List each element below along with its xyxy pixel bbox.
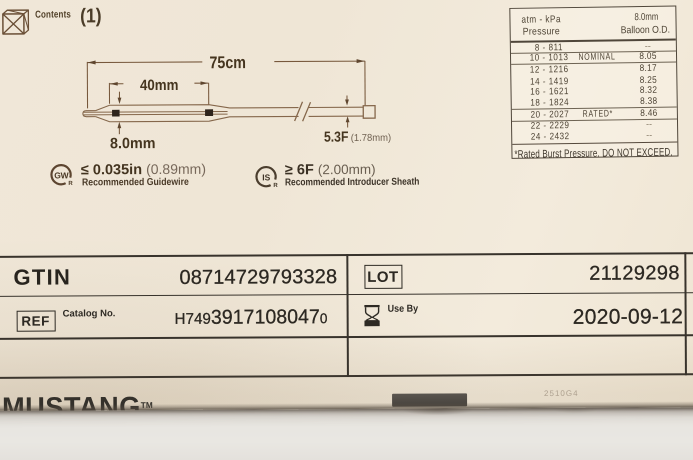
svg-text:5.3F: 5.3F [324, 129, 349, 145]
svg-text:8.0mm: 8.0mm [110, 135, 156, 152]
svg-text:(1.78mm): (1.78mm) [351, 133, 392, 144]
svg-text:R: R [273, 183, 278, 189]
svg-text:R: R [68, 181, 73, 187]
svg-text:IS: IS [262, 172, 270, 182]
svg-text:40mm: 40mm [140, 77, 179, 94]
svg-text:75cm: 75cm [209, 53, 246, 72]
svg-text:GW: GW [54, 170, 69, 180]
